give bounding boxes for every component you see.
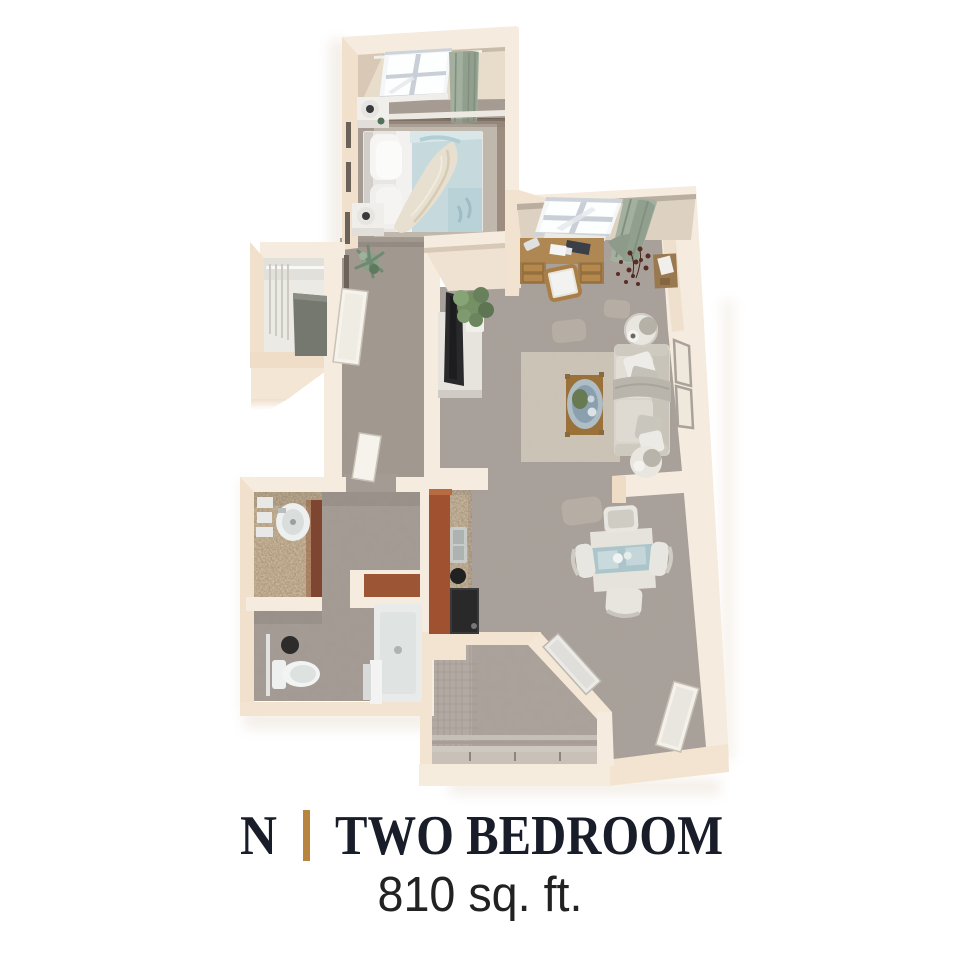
svg-text:810 sq. ft.: 810 sq. ft. [378,868,583,922]
svg-text:TWO BEDROOM: TWO BEDROOM [335,805,723,867]
svg-text:N: N [240,805,277,867]
